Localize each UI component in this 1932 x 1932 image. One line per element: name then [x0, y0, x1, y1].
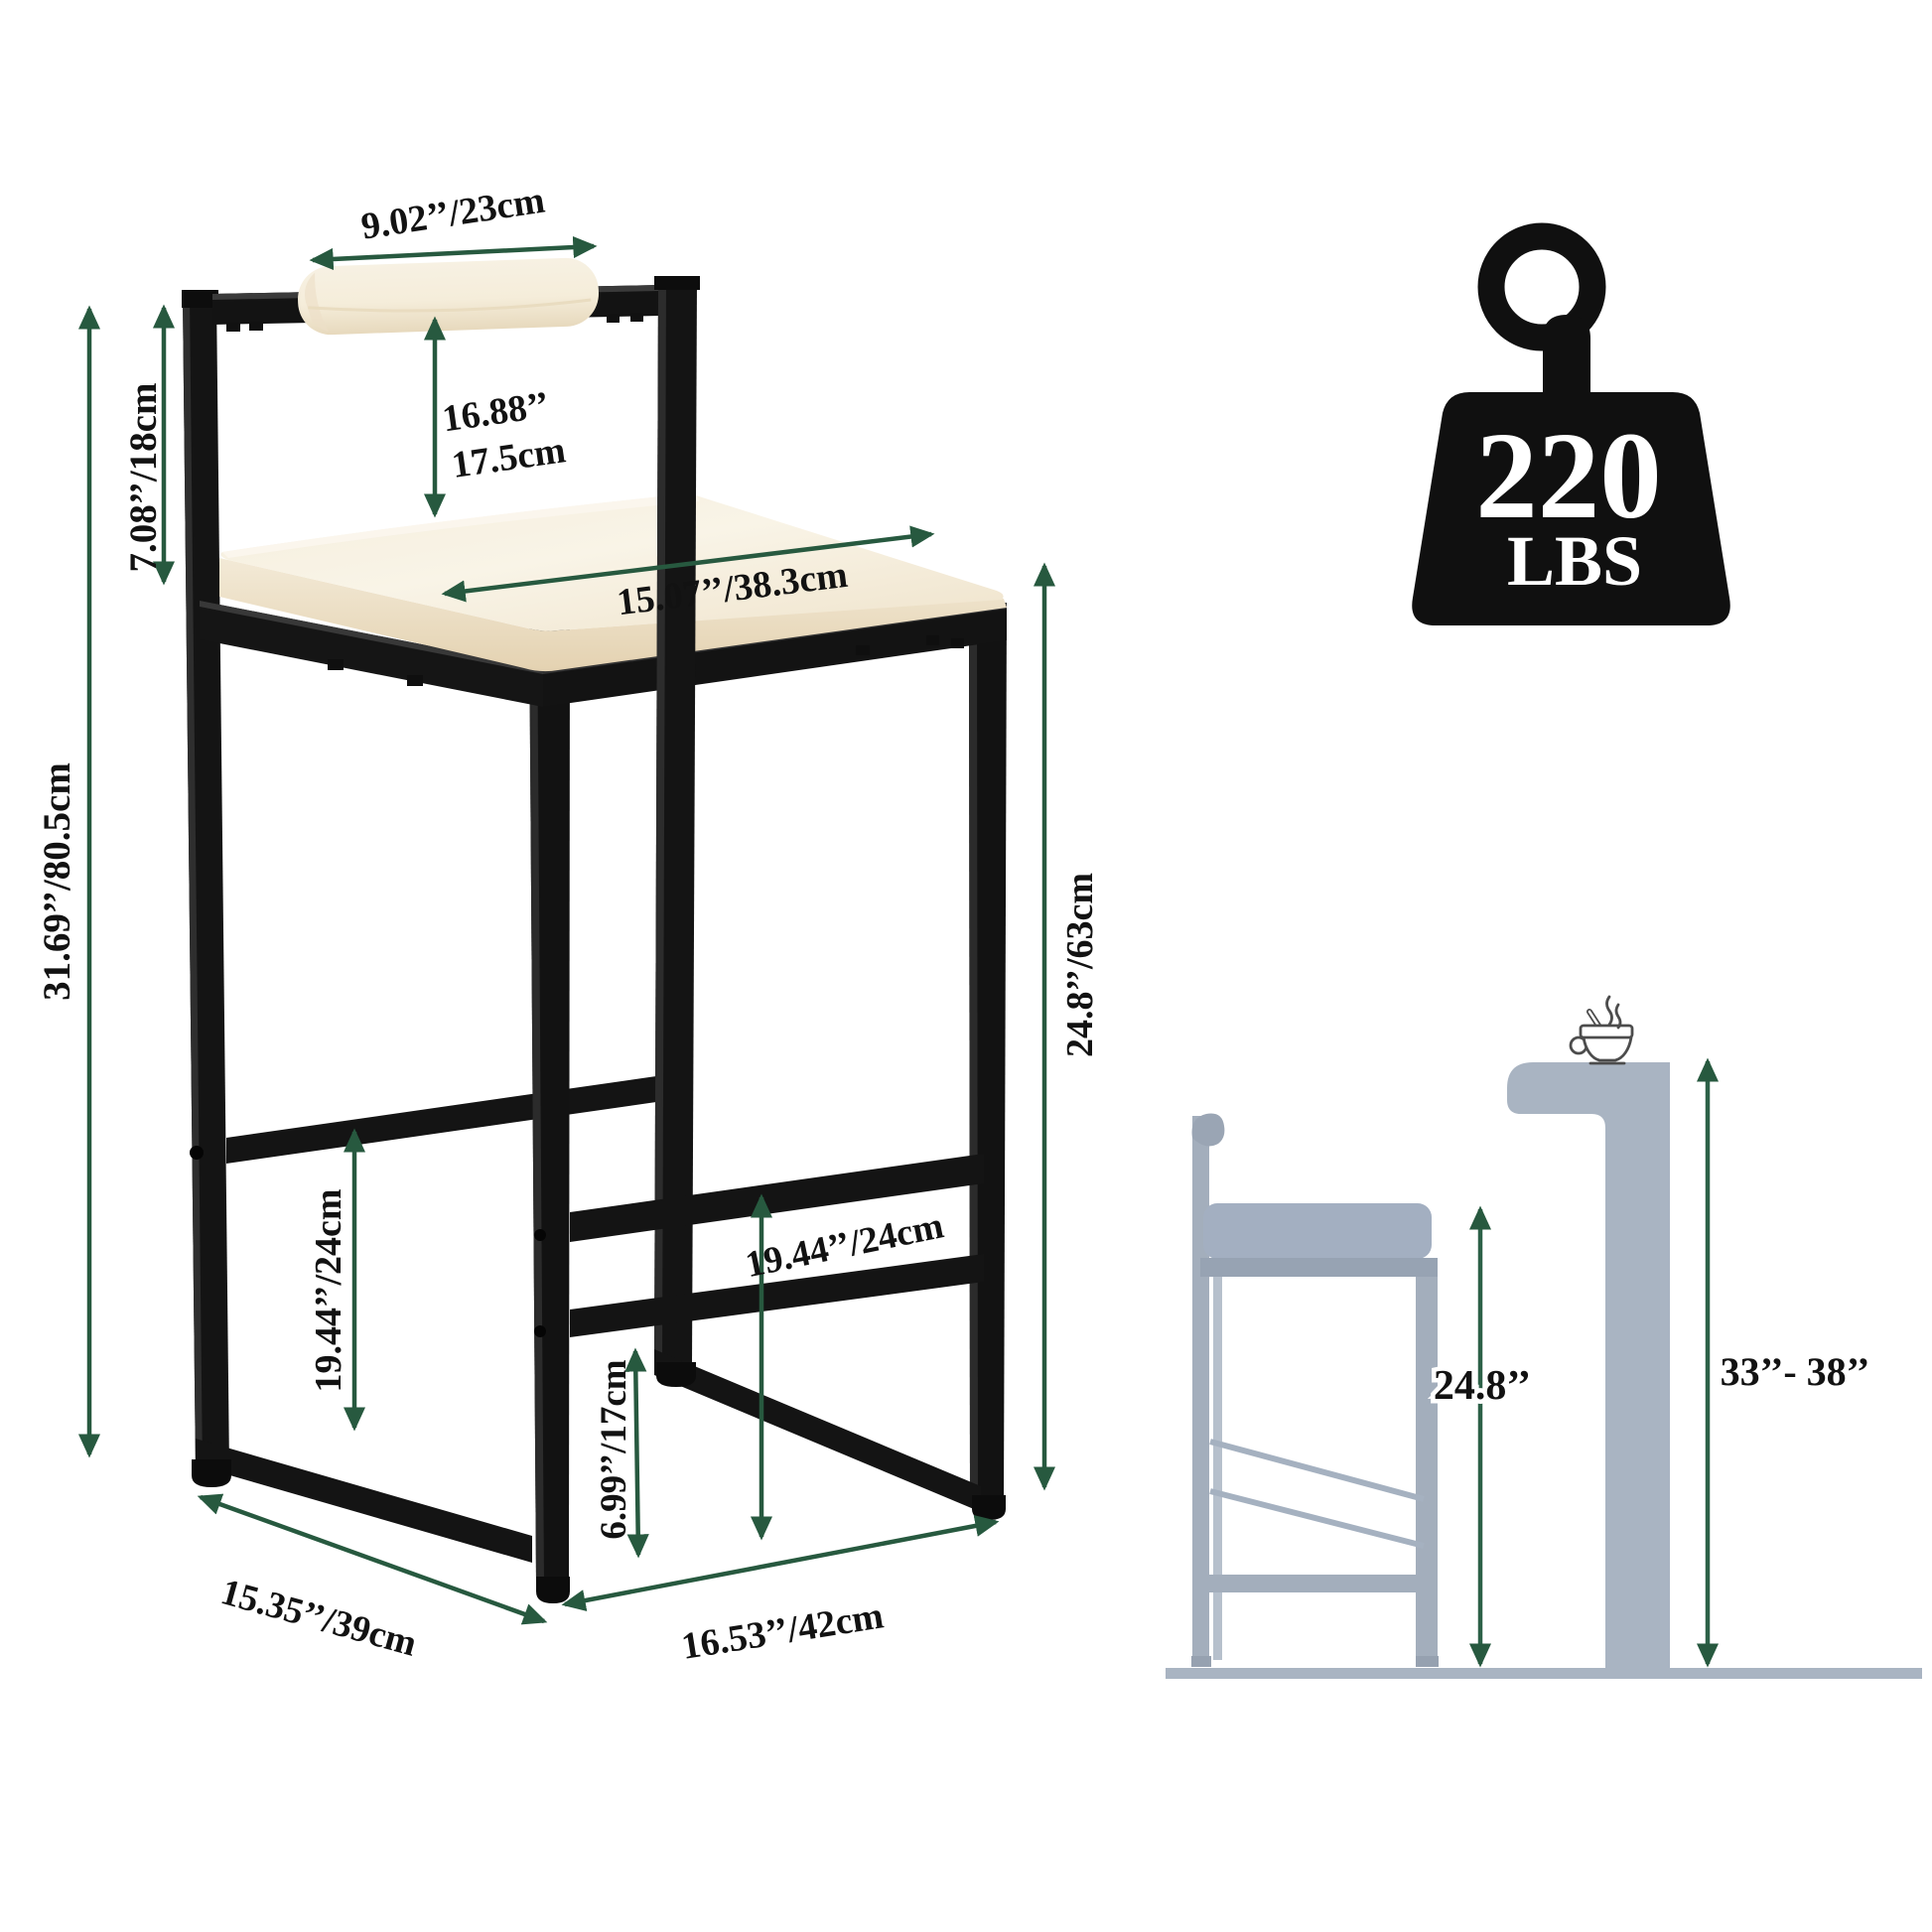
svg-text:17.5cm: 17.5cm: [449, 429, 568, 486]
svg-text:16.53’’/42cm: 16.53’’/42cm: [679, 1594, 887, 1668]
svg-text:24.8’’: 24.8’’: [1434, 1363, 1531, 1409]
svg-text:9.02’’/23cm: 9.02’’/23cm: [358, 180, 547, 248]
svg-text:31.69’’/80.5cm: 31.69’’/80.5cm: [36, 762, 78, 1001]
svg-text:7.08’’/18cm: 7.08’’/18cm: [122, 383, 165, 573]
svg-text:19.44’’/24cm: 19.44’’/24cm: [308, 1188, 349, 1392]
svg-text:24.8’’/63cm: 24.8’’/63cm: [1059, 873, 1101, 1057]
svg-text:16.88’’: 16.88’’: [440, 384, 552, 441]
svg-text:6.99’’/17cm: 6.99’’/17cm: [594, 1359, 634, 1539]
svg-text:33’’- 38’’: 33’’- 38’’: [1721, 1349, 1870, 1394]
svg-text:15.35’’/39cm: 15.35’’/39cm: [216, 1572, 421, 1665]
svg-text:LBS: LBS: [1507, 521, 1642, 601]
